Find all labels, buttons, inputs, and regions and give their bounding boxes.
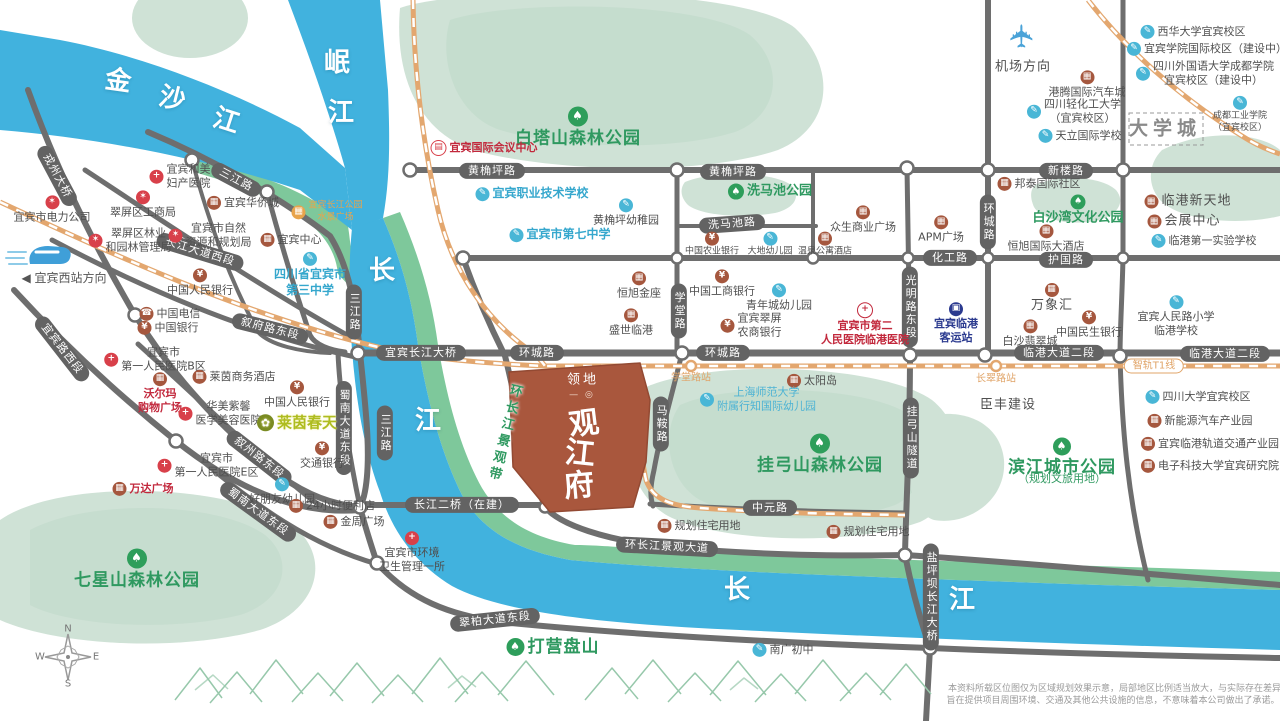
school-icon: ✎ [763, 232, 777, 246]
poi-label: ▦宜宾中心 [261, 233, 322, 247]
building-icon: ▦ [934, 215, 948, 229]
road-pill: 盐坪坝长江大桥 [923, 544, 939, 651]
hospital-icon: + [104, 353, 118, 367]
road-pill: 环城路 [696, 345, 750, 361]
poi-label: ✎成都工业学院（宜宾校区） [1213, 96, 1267, 134]
brand-icon: ✿ [257, 415, 274, 432]
poi-label: ▦临港新天地 [1144, 194, 1231, 211]
road-pill: 临港大道二段 [1180, 346, 1270, 362]
poi-label: ✎黄桷坪幼稚园 [593, 198, 659, 227]
river-label: 江 [208, 102, 243, 142]
poi-label: ▦会展中心 [1147, 214, 1220, 231]
gov-icon: ✶ [136, 190, 150, 204]
poi-label: ▦白沙翡翠城 [1003, 319, 1058, 348]
tree-icon: ♠ [728, 184, 744, 200]
river-label: 长 [724, 574, 750, 608]
gov-icon: ✶ [89, 234, 103, 248]
poi-label: ✎青年城幼儿园 [746, 283, 812, 312]
road-pill: 学堂路 [671, 284, 687, 339]
road-pill: 宜宾长江大桥 [376, 345, 466, 361]
poi-label: +宜宾市环境卫生管理一所 [379, 531, 445, 575]
property-brand: 领地 [567, 373, 599, 390]
compass-letter-w: W [35, 651, 45, 664]
building-icon: ▦ [856, 205, 870, 219]
river-label: 江 [415, 405, 441, 439]
conf-icon: ▤ [431, 140, 447, 156]
hospital-icon: + [158, 459, 172, 473]
poi-label: ¥中国农业银行 [685, 232, 739, 259]
building-icon: ▦ [827, 525, 841, 539]
tree-icon: ♠ [1053, 437, 1071, 455]
poi-label: ✶宜宾市自然资源和规划局 [169, 222, 252, 251]
district-label: 大学城 [1129, 117, 1201, 142]
poi-label: ▦万达广场 [113, 482, 174, 496]
poi-label: ✎天立国际学校 [1039, 129, 1122, 143]
building-icon: ▦ [1045, 283, 1059, 297]
poi-label: ▦港腾国际汽车城 [1049, 70, 1126, 99]
poi-label: ▦电子科技大学宜宾研究院 [1141, 459, 1279, 473]
building-icon: ▦ [261, 233, 275, 247]
poi-label: ✶翠屏区工商局 [110, 190, 176, 219]
disclaimer-line: 本资料所载区位图仅为区域规划效果示意，局部地区比例适当放大，与实际存在差异， [948, 684, 1280, 696]
river-label: 岷 [324, 47, 350, 81]
road-pill: 环长江景观大道 [616, 536, 719, 558]
poi-label: ✎宜宾职业技术学校 [475, 186, 588, 202]
poi-label: ▣宜宾临港客运站 [934, 302, 978, 346]
rail-line-pill: 智轨T1线 [1124, 359, 1184, 374]
property-logo: — ◎ [569, 390, 595, 402]
road-pill: 翠柏大道东段 [449, 607, 540, 633]
road-pill: 黄桷坪路 [700, 164, 766, 180]
road-pill: 马鞍路 [653, 397, 669, 452]
building-icon: ▦ [324, 515, 338, 529]
compass-letter-s: S [65, 678, 71, 691]
school-icon: ✎ [1127, 42, 1141, 56]
poi-label: ✎临港第一实验学校 [1152, 234, 1257, 248]
tree-icon: ♠ [1070, 195, 1085, 210]
poi-label: +华美紫馨医学美容医院 [179, 400, 262, 429]
school-icon: ✎ [700, 393, 714, 407]
airplane-icon: ✈ [1002, 23, 1044, 50]
road-pill: 三江路 [346, 285, 362, 340]
poi-label: +宜宾和美妇产医院 [150, 163, 211, 192]
poi-label: ▦沃尔玛购物广场 [138, 372, 182, 416]
school-icon: ✎ [303, 252, 317, 266]
school-icon: ✎ [1039, 129, 1053, 143]
poi-label: ▦金周广场 [324, 515, 385, 529]
school-icon: ✎ [619, 198, 633, 212]
road-pill: 三江路 [377, 406, 393, 461]
poi-label: ✎四川大学宜宾校区 [1146, 390, 1251, 404]
school-icon: ✎ [753, 643, 767, 657]
building-icon: ▦ [289, 499, 303, 513]
poi-label: ▦24小时便利店 [289, 499, 375, 513]
poi-label: ¥中国人民银行 [167, 268, 233, 297]
road-pill: 环城路 [510, 345, 564, 361]
school-icon: ✎ [1136, 67, 1150, 81]
poi-label: ▤宜宾国际会议中心 [431, 140, 538, 156]
building-icon: ▦ [998, 177, 1012, 191]
building-icon: ▦ [1148, 414, 1162, 428]
bank-icon: ¥ [290, 380, 304, 394]
building-icon: ▦ [207, 196, 221, 210]
poi-label: +宜宾市第二人民医院临港医院 [821, 302, 909, 348]
poi-label: ▦规划住宅用地 [658, 519, 741, 533]
phone-icon: ☎ [140, 307, 154, 321]
poi-label: ¥中国人民银行 [264, 380, 330, 409]
tree-icon: ♠ [568, 106, 588, 126]
school-icon: ✎ [1146, 390, 1160, 404]
poi-label: ¥中国民生银行 [1056, 310, 1122, 339]
park-sublabel: （规划文旅用地） [1018, 472, 1106, 486]
building-icon: ▦ [1144, 195, 1158, 209]
road-pill: 护国路 [1039, 252, 1093, 268]
school-icon: ✎ [1027, 105, 1041, 119]
poi-label: ▦规划住宅用地 [827, 525, 910, 539]
building-icon: ▦ [113, 482, 127, 496]
poi-label: ▦宜宾华侨城 [207, 196, 279, 210]
road-pill: 化工路 [923, 250, 977, 266]
building-icon: ▦ [1039, 224, 1053, 238]
poi-label: ✶宜宾市电力公司 [14, 195, 91, 224]
tree-icon: ♠ [127, 548, 147, 568]
building-icon: ▦ [1141, 459, 1155, 473]
park-label: ♠白沙湾文化公园 [1032, 195, 1123, 228]
poi-label: ✎宜宾市第七中学 [509, 227, 610, 243]
poi-label: ▦宜宾长江公园水景广场 [291, 200, 362, 223]
school-icon: ✎ [275, 477, 289, 491]
poi-label: ▦温泉公寓酒店 [798, 232, 852, 259]
school-icon: ✎ [1152, 234, 1166, 248]
poi-label: ✎西华大学宜宾校区 [1141, 25, 1246, 39]
road-pill: 叙府路东段 [230, 312, 310, 347]
poi-label: +宜宾市第一人民医院E区 [158, 452, 259, 481]
compass-letter-e: E [93, 651, 99, 664]
poi-label: 机场方向 [995, 60, 1051, 77]
poi-label: ✶翠屏区林业和园林管理局 [89, 227, 172, 256]
building-icon: ▦ [658, 519, 672, 533]
poi-label: 臣丰建设 [980, 398, 1036, 415]
road-pill: 黄桷坪路 [459, 163, 525, 179]
school-icon: ✎ [475, 187, 489, 201]
compass-letter-n: N [64, 623, 71, 636]
gov-icon: ✶ [45, 195, 59, 209]
building-icon: ▦ [1023, 319, 1037, 333]
school-icon: ✎ [509, 228, 523, 242]
tree-icon: ♠ [810, 433, 830, 453]
poi-label: ▦恒旭金座 [617, 271, 661, 300]
poi-label: ¥交通银行 [300, 441, 344, 470]
hosp2-icon: + [857, 302, 873, 318]
orange-icon: ▦ [291, 205, 305, 219]
road-pill: 挂弓山隧道 [903, 398, 919, 479]
school-icon: ✎ [772, 283, 786, 297]
road-pill: 中元路 [743, 500, 797, 516]
poi-label: ✎四川外国语大学成都学院宜宾校区（建设中） [1136, 60, 1274, 89]
hospital-icon: + [179, 407, 193, 421]
bus-icon: ▣ [949, 302, 963, 316]
poi-label: ▦邦泰国际社区 [998, 177, 1081, 191]
poi-label: ✎四川轻化工大学（宜宾校区） [1027, 98, 1121, 127]
property-name-char: 府 [562, 465, 595, 506]
riverside-greenway-label: 环长江景观带 [482, 381, 523, 484]
brand-badge: ✿莱茵春天 [257, 413, 337, 433]
poi-label: ✎四川省宜宾市第三中学 [274, 252, 346, 298]
building-icon: ▦ [153, 372, 167, 386]
building-icon: ▦ [193, 370, 207, 384]
poi-label: ▦APM广场 [918, 215, 964, 244]
park-label: ♠洗马池公园 [728, 184, 812, 201]
hospital-icon: + [150, 170, 164, 184]
poi-label: ▦恒旭国际大酒店 [1008, 224, 1085, 253]
disclaimer-line: 旨在提供项目周围环境、交通及其他公共设施的信息，不意味着本公司做出了承诺。 [946, 696, 1279, 708]
poi-label: +宜宾市第一人民医院B区 [104, 346, 206, 375]
building-icon: ▦ [624, 308, 638, 322]
park-label: ♠七星山森林公园 [74, 548, 200, 591]
bank-icon: ¥ [193, 268, 207, 282]
poi-label: ▦宜宾临港轨道交通产业园 [1141, 437, 1279, 451]
river-label: 金 [103, 63, 133, 100]
bank-icon: ¥ [721, 319, 735, 333]
poi-label: ✎宜宾学院国际校区（建设中） [1127, 42, 1280, 56]
gov-icon: ✶ [169, 229, 183, 243]
bank-icon: ¥ [715, 269, 729, 283]
river-label: 长 [369, 255, 395, 289]
river-label: 沙 [155, 80, 188, 119]
poi-label: ▦新能源汽车产业园 [1148, 414, 1253, 428]
poi-label: ✎南广初中 [753, 643, 814, 657]
direction-label: ◀ 宜宾西站方向 [21, 271, 106, 287]
poi-label: ☎中国电信 [140, 307, 201, 321]
poi-label: ¥中国银行 [138, 321, 199, 335]
building-icon: ▦ [1147, 215, 1161, 229]
road-pill: 三江路 [208, 160, 263, 200]
poi-label: ✎上海师范大学附属行知国际幼儿园 [700, 386, 816, 415]
building-icon: ▦ [1141, 437, 1155, 451]
road-pill: 宜宾路西段 [32, 313, 93, 384]
school-icon: ✎ [1141, 25, 1155, 39]
map-labels-layer: 金沙江岷江长江长江黄桷坪路黄桷坪路新楼路洗马池路化工路护国路环城路环城路环城路学… [0, 0, 1280, 721]
poi-label: ¥宜宾翠屏农商银行 [721, 312, 782, 341]
map-canvas: 金沙江岷江长江长江黄桷坪路黄桷坪路新楼路洗马池路化工路护国路环城路环城路环城路学… [0, 0, 1280, 721]
poi-label: ▦众生商业广场 [830, 205, 896, 234]
road-pill: 环城路 [980, 195, 996, 250]
station-label: 学堂路站 [671, 372, 711, 385]
poi-label: ▦盛世临港 [609, 308, 653, 337]
building-icon: ▦ [1080, 70, 1094, 84]
school-icon: ✎ [1233, 96, 1247, 110]
bank-icon: ¥ [315, 441, 329, 455]
park-label: ♠挂弓山森林公园 [757, 433, 883, 476]
school-icon: ✎ [1169, 295, 1183, 309]
tree-icon: ♠ [507, 638, 525, 656]
building-icon: ▦ [632, 271, 646, 285]
bank-icon: ¥ [138, 321, 152, 335]
hospital-icon: + [405, 531, 419, 545]
poi-label: ✎宜宾人民路小学临港学校 [1138, 295, 1215, 339]
station-label: 长翠路站 [976, 373, 1016, 386]
river-label: 江 [949, 584, 975, 618]
bank-icon: ¥ [1082, 310, 1096, 324]
poi-label: ✎大地幼儿园 [747, 232, 792, 259]
park-label: ♠打营盘山 [507, 636, 600, 658]
bank-icon: ¥ [705, 232, 719, 246]
river-label: 江 [328, 97, 354, 131]
road-pill: 长江二桥（在建） [405, 497, 519, 513]
